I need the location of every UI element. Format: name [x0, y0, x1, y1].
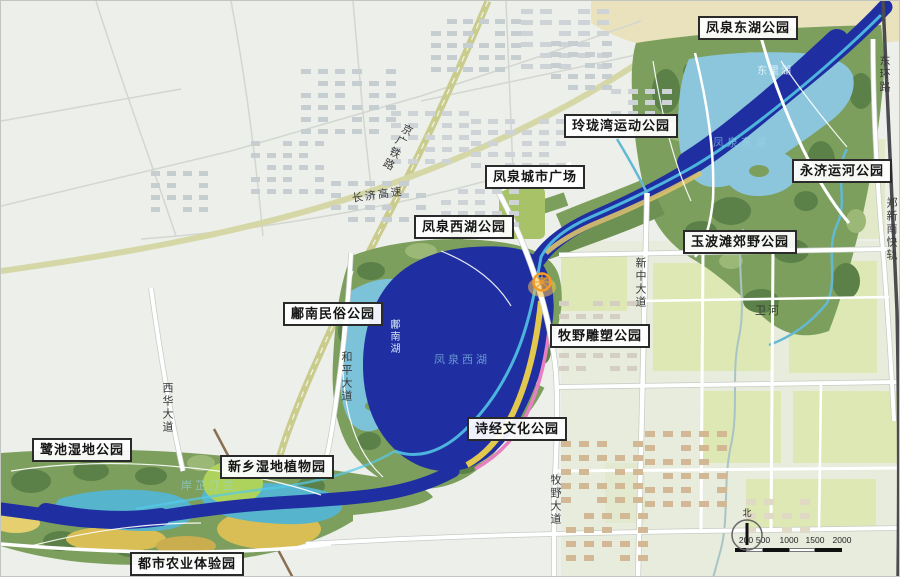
scale-segment [815, 548, 842, 552]
planning-map: 凤泉东湖公园玲珑湾运动公园凤泉城市广场凤泉西湖公园永济运河公园玉波滩郊野公园鄘南… [0, 0, 900, 577]
scale-tick: 2000 [833, 535, 852, 545]
scale-tick: 1000 [780, 535, 799, 545]
north-arrow-icon: 北 [727, 507, 767, 557]
map-artwork [1, 1, 900, 577]
svg-text:北: 北 [742, 508, 751, 518]
scale-bar: 200 500 1000 1500 2000 北 [727, 507, 899, 569]
scale-segment [789, 548, 815, 552]
scale-tick: 1500 [806, 535, 825, 545]
